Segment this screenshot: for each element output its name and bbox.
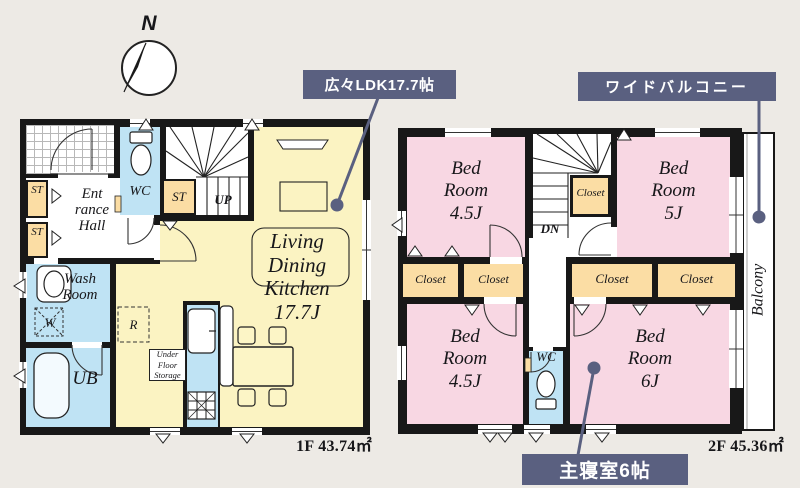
callout-ldk: 広々LDK17.7帖 — [303, 70, 456, 99]
room-bedroom-5 — [617, 137, 730, 257]
compass-icon — [122, 41, 176, 95]
room-closet-stairs — [570, 175, 611, 217]
callout-master-text: 主寝室6帖 — [559, 456, 651, 483]
entrance-porch — [26, 125, 114, 174]
room-bedroom-45-top — [407, 137, 525, 257]
room-closet-2 — [464, 264, 523, 297]
callout-master-bedroom: 主寝室6帖 — [522, 454, 688, 485]
under-floor-storage-label: UnderFloorStorage — [150, 349, 185, 381]
room-bedroom-6 — [570, 304, 730, 424]
room-wc-1f — [120, 127, 160, 215]
balcony-strip — [742, 132, 775, 431]
under-floor-storage-box: UnderFloorStorage — [149, 349, 186, 381]
room-st-closet-2 — [26, 222, 48, 258]
room-wc-2f — [529, 351, 563, 424]
hall-2f-center — [529, 238, 566, 347]
callout-balcony-text: ワイドバルコニー — [605, 76, 749, 97]
callout-ldk-text: 広々LDK17.7帖 — [324, 74, 434, 95]
room-bedroom-45-bottom — [407, 304, 523, 424]
kitchen-counter-area — [183, 301, 220, 427]
room-closet-4 — [658, 264, 735, 297]
room-st-closet-1 — [26, 180, 48, 218]
floor1-area-label: 1F 43.74㎡ — [250, 438, 372, 456]
compass-n-label: N — [134, 12, 164, 36]
room-closet-1 — [403, 264, 458, 297]
room-wash-room — [26, 264, 110, 342]
room-closet-3 — [572, 264, 652, 297]
room-ub-bath — [26, 348, 110, 427]
room-ldk-passage — [160, 221, 254, 264]
room-st-closet-3 — [162, 179, 196, 215]
floorplan-canvas: UnderFloorStorage — [0, 0, 800, 488]
callout-balcony: ワイドバルコニー — [578, 72, 776, 101]
room-ldk-main — [254, 127, 363, 427]
